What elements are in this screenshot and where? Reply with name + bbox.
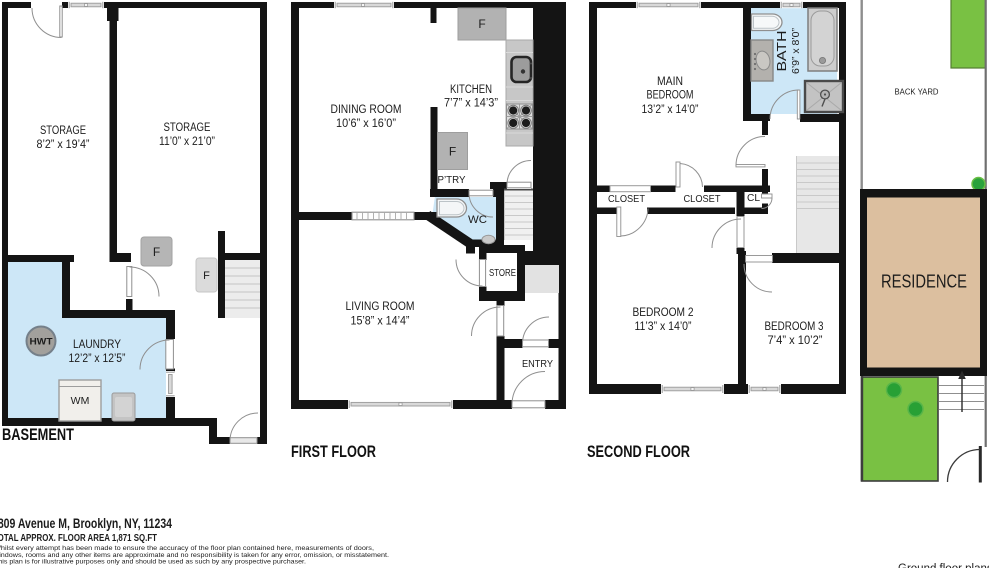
svg-text:7’4” x 10’2”: 7’4” x 10’2” (768, 335, 823, 347)
svg-text:7’7” x 14’3”: 7’7” x 14’3” (444, 98, 498, 110)
svg-text:WM: WM (71, 395, 90, 407)
svg-text:F: F (478, 17, 485, 31)
svg-text:WC: WC (468, 214, 487, 226)
svg-text:BASEMENT: BASEMENT (2, 425, 74, 444)
svg-text:LIVING ROOM: LIVING ROOM (346, 301, 415, 313)
svg-text:BEDROOM: BEDROOM (647, 90, 694, 102)
svg-text:TOTAL APPROX. FLOOR AREA 1,871: TOTAL APPROX. FLOOR AREA 1,871 SQ.FT (0, 532, 157, 544)
svg-text:P’TRY: P’TRY (438, 174, 466, 186)
svg-text:SECOND FLOOR: SECOND FLOOR (587, 442, 690, 461)
svg-text:13’2” x 14’0”: 13’2” x 14’0” (642, 104, 699, 116)
svg-text:CLOSET: CLOSET (608, 193, 646, 205)
svg-text:F: F (153, 245, 160, 259)
svg-text:RESIDENCE: RESIDENCE (881, 271, 967, 292)
svg-text:LAUNDRY: LAUNDRY (73, 339, 121, 351)
svg-text:8’2” x 19’4”: 8’2” x 19’4” (37, 139, 90, 151)
svg-text:STORAGE: STORAGE (164, 122, 211, 134)
svg-text:CLOSET: CLOSET (684, 193, 722, 205)
svg-text:15’8” x 14’4”: 15’8” x 14’4” (351, 316, 410, 328)
svg-text:F: F (449, 145, 456, 159)
svg-text:11’0” x 21’0”: 11’0” x 21’0” (159, 136, 215, 148)
svg-text:BATH: BATH (775, 31, 789, 72)
svg-text:Whilst every attempt has been: Whilst every attempt has been made to en… (0, 545, 374, 552)
svg-text:Ground floor plans: Ground floor plans (898, 563, 989, 568)
svg-text:11’3” x 14’0”: 11’3” x 14’0” (635, 321, 692, 333)
svg-text:FIRST FLOOR: FIRST FLOOR (291, 442, 376, 461)
svg-text:BEDROOM 3: BEDROOM 3 (765, 321, 824, 333)
svg-text:10’6” x 16’0”: 10’6” x 16’0” (336, 118, 396, 130)
svg-text:12’2” x 12’5”: 12’2” x 12’5” (69, 353, 126, 365)
svg-text:HWT: HWT (30, 337, 54, 347)
svg-text:STORAGE: STORAGE (40, 125, 86, 137)
svg-text:DINING ROOM: DINING ROOM (331, 104, 402, 116)
svg-text:CL: CL (747, 192, 760, 204)
svg-text:6’9” x 8’0”: 6’9” x 8’0” (790, 28, 802, 74)
svg-text:This plan is for illustrative: This plan is for illustrative purposes o… (0, 559, 306, 566)
svg-text:MAIN: MAIN (657, 76, 683, 88)
svg-text:1809 Avenue M, Brooklyn, NY, 1: 1809 Avenue M, Brooklyn, NY, 11234 (0, 516, 172, 531)
svg-text:STORE: STORE (489, 267, 516, 279)
svg-text:ENTRY: ENTRY (522, 358, 553, 370)
svg-text:F: F (203, 270, 210, 282)
svg-text:BEDROOM 2: BEDROOM 2 (633, 307, 694, 319)
svg-text:KITCHEN: KITCHEN (450, 84, 492, 96)
svg-text:BACK YARD: BACK YARD (895, 87, 939, 97)
